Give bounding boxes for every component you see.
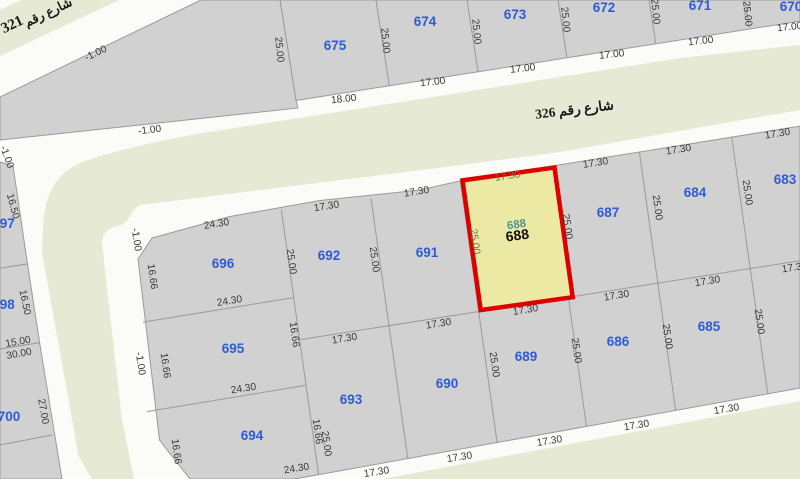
svg-text:688: 688 <box>505 225 531 244</box>
svg-text:686: 686 <box>607 334 630 349</box>
svg-text:671: 671 <box>689 0 712 13</box>
svg-text:675: 675 <box>324 38 347 53</box>
svg-text:695: 695 <box>222 341 245 356</box>
svg-text:672: 672 <box>593 0 616 15</box>
svg-text:700: 700 <box>0 409 20 424</box>
svg-text:696: 696 <box>212 256 235 271</box>
svg-text:673: 673 <box>504 7 527 22</box>
svg-text:685: 685 <box>698 319 721 334</box>
svg-text:674: 674 <box>414 14 437 29</box>
svg-text:693: 693 <box>340 392 363 407</box>
svg-text:691: 691 <box>416 245 439 260</box>
svg-text:692: 692 <box>318 248 341 263</box>
svg-text:670: 670 <box>780 0 800 14</box>
svg-text:17.00: 17.00 <box>776 21 800 35</box>
svg-text:690: 690 <box>436 376 459 391</box>
svg-text:698: 698 <box>0 297 15 312</box>
svg-text:683: 683 <box>774 172 797 187</box>
svg-text:694: 694 <box>241 428 264 443</box>
svg-text:684: 684 <box>684 185 707 200</box>
svg-text:689: 689 <box>515 349 538 364</box>
svg-text:687: 687 <box>597 205 620 220</box>
